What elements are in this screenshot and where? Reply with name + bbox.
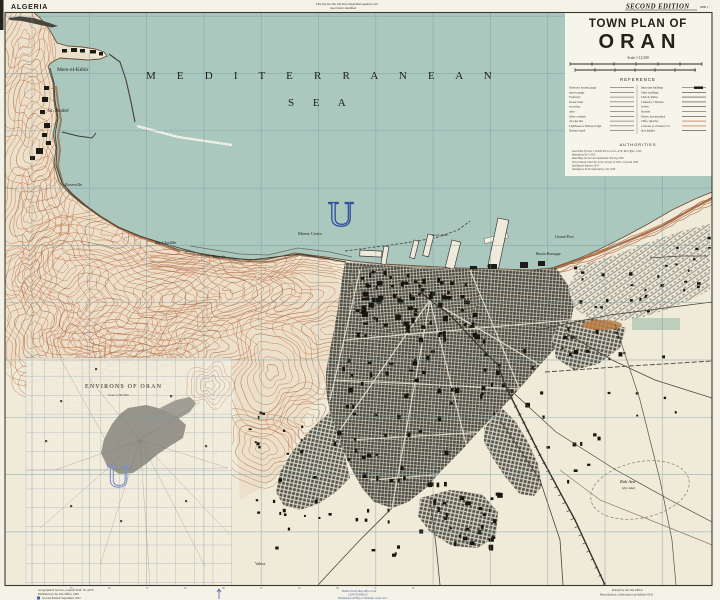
svg-text:U: U [328,194,354,234]
svg-text:Intelligence & Air information: Intelligence & Air information, July 194… [571,168,616,171]
svg-text:Intelligence Reports 1941: Intelligence Reports 1941 [571,164,599,167]
svg-text:Valmy: Valmy [255,561,265,566]
svg-text:This map has War and Navy Depa: This map has War and Navy Department Age… [316,3,378,6]
svg-text:narrow gauge: narrow gauge [569,91,585,94]
svg-text:Roads: main: Roads: main [569,101,584,104]
svg-text:4080 1: 4080 1 [700,5,709,9]
svg-text:TOWN PLAN OF: TOWN PLAN OF [589,18,687,30]
svg-text:Cemetery: Christian: Cemetery: Christian [641,101,664,104]
svg-text:Jewish: Jewish [641,106,649,109]
svg-text:Reproduction of this map is pr: Reproduction of this map is prohibited 1… [600,593,654,597]
svg-text:Town Plan of Oran 1:10,000 W.: Town Plan of Oran 1:10,000 W.O.G.S.G.S. … [572,150,642,153]
svg-text:Rivers, non-perennial: Rivers, non-perennial [641,115,665,118]
svg-text:report side is identified: report side is identified [330,7,356,10]
svg-text:other: other [569,111,575,114]
svg-text:Ravin Blanc: Ravin Blanc [431,233,449,237]
svg-text:Important buildings: Important buildings [641,87,663,90]
svg-text:Water conduits: Water conduits [569,115,586,118]
svg-text:AUTHORITIES: AUTHORITIES [620,142,657,147]
svg-text:REFERENCE: REFERENCE [620,77,656,82]
svg-text:Railways: normal gauge: Railways: normal gauge [569,87,597,90]
svg-text:ENVIRONS OF ORAN: ENVIRONS OF ORAN [85,384,162,390]
svg-text:Air pipe line: Air pipe line [569,120,584,123]
svg-text:Moslem: Moslem [641,111,651,114]
svg-text:S E A: S E A [288,97,354,109]
svg-text:Lighthouse or Harbour Light: Lighthouse or Harbour Light [569,125,602,128]
svg-text:M E D I T E R R A N E A N: M E D I T E R R A N E A N [146,70,501,82]
svg-text:Other buildings: Other buildings [641,91,658,94]
svg-text:Monte Cristo: Monte Cristo [298,231,323,236]
svg-text:ALGERIA: ALGERIA [11,4,48,11]
svg-text:Second Edition September 1941: Second Edition September 1941 [42,596,81,600]
svg-text:Distance mark: Distance mark [569,130,586,133]
svg-text:Bassin Roussgnp: Bassin Roussgnp [536,252,561,256]
svg-text:Reproduced by 51 R.E.: Reproduced by 51 R.E. [571,154,596,157]
svg-text:St. André: St. André [48,108,69,114]
svg-text:Cliffs, Quarries: Cliffs, Quarries [641,120,658,123]
svg-text:ORAN: ORAN [599,31,682,53]
svg-text:secondary: secondary [569,106,581,109]
svg-text:Ste Clotilde: Ste Clotilde [155,240,176,245]
svg-text:Printed by the War Office: Printed by the War Office [612,588,643,592]
svg-text:Roseville: Roseville [65,182,82,187]
svg-text:Church, Shrine: Church, Shrine [641,96,659,99]
svg-text:SECOND EDITION: SECOND EDITION [626,4,690,11]
svg-text:Rab Azu: Rab Azu [619,479,636,484]
svg-text:Spot heights: Spot heights [641,130,655,133]
svg-text:(dry lake): (dry lake) [622,486,636,490]
svg-text:Contours at 10 metres V.I.: Contours at 10 metres V.I. [641,125,671,128]
svg-text:Road Map, Service de l'Automob: Road Map, Service de l'Automobile Tourin… [571,157,624,160]
svg-text:French Naval Chart No. 3142, S: French Naval Chart No. 3142, Surveys of … [571,161,639,164]
svg-text:Baie de: Baie de [213,254,225,259]
svg-text:U: U [107,458,130,494]
svg-text:Grand Port: Grand Port [555,234,574,239]
svg-text:Mers-el-Kébir: Mers-el-Kébir [57,67,89,73]
svg-text:Tramways: Tramways [569,96,581,99]
